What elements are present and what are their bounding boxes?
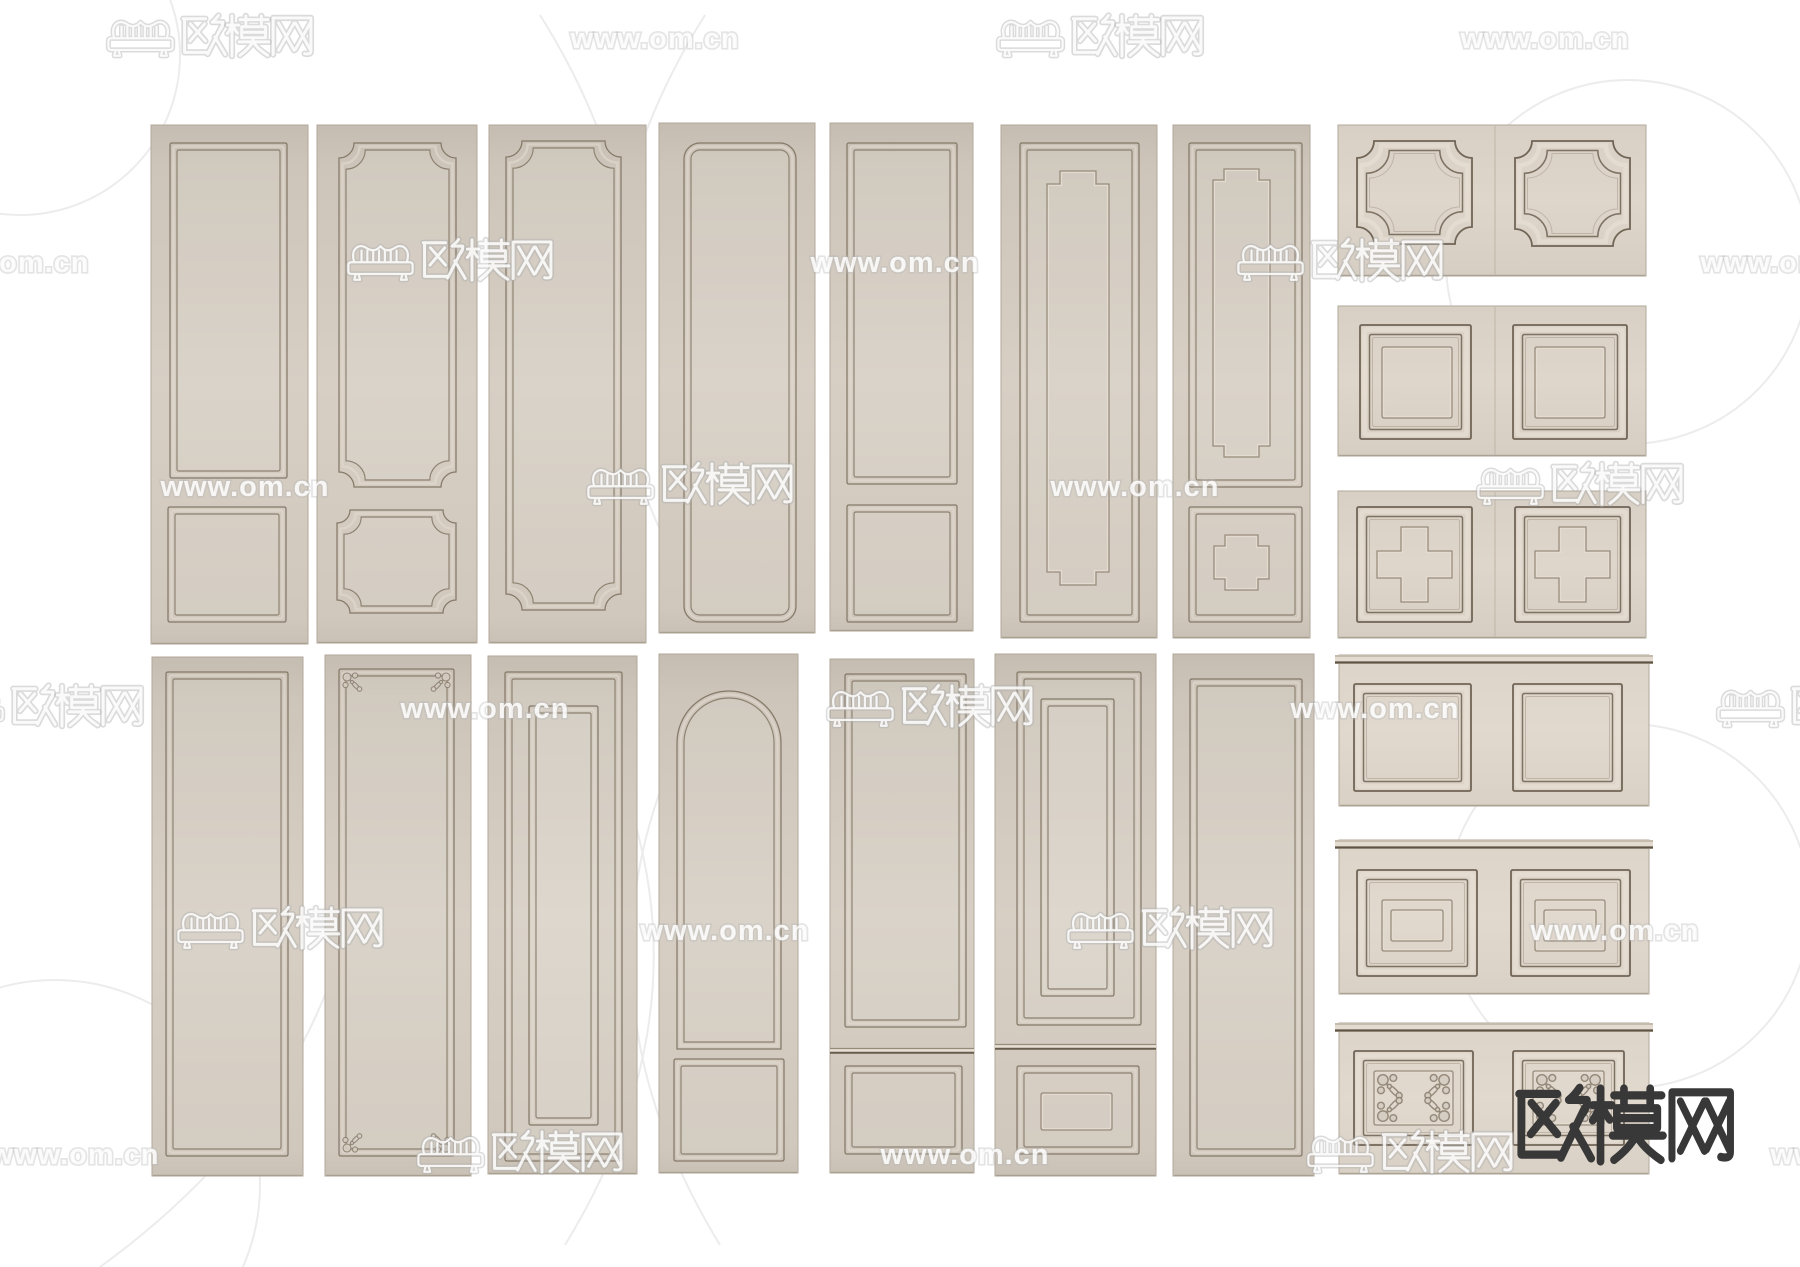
svg-text:www.om.cn: www.om.cn — [1529, 915, 1699, 947]
svg-text:www.om.cn: www.om.cn — [1769, 1139, 1800, 1171]
svg-text:www.om.cn: www.om.cn — [1699, 247, 1800, 279]
svg-text:www.om.cn: www.om.cn — [569, 23, 739, 55]
svg-text:www.om.cn: www.om.cn — [1459, 23, 1629, 55]
svg-text:www.om.cn: www.om.cn — [0, 247, 90, 279]
svg-text:www.om.cn: www.om.cn — [809, 247, 979, 279]
svg-text:www.om.cn: www.om.cn — [1049, 471, 1219, 503]
svg-text:www.om.cn: www.om.cn — [879, 1139, 1049, 1171]
svg-text:www.om.cn: www.om.cn — [639, 915, 809, 947]
svg-text:www.om.cn: www.om.cn — [399, 693, 569, 725]
svg-text:www.om.cn: www.om.cn — [1289, 693, 1459, 725]
svg-text:www.om.cn: www.om.cn — [0, 1139, 160, 1171]
svg-text:www.om.cn: www.om.cn — [159, 471, 329, 503]
